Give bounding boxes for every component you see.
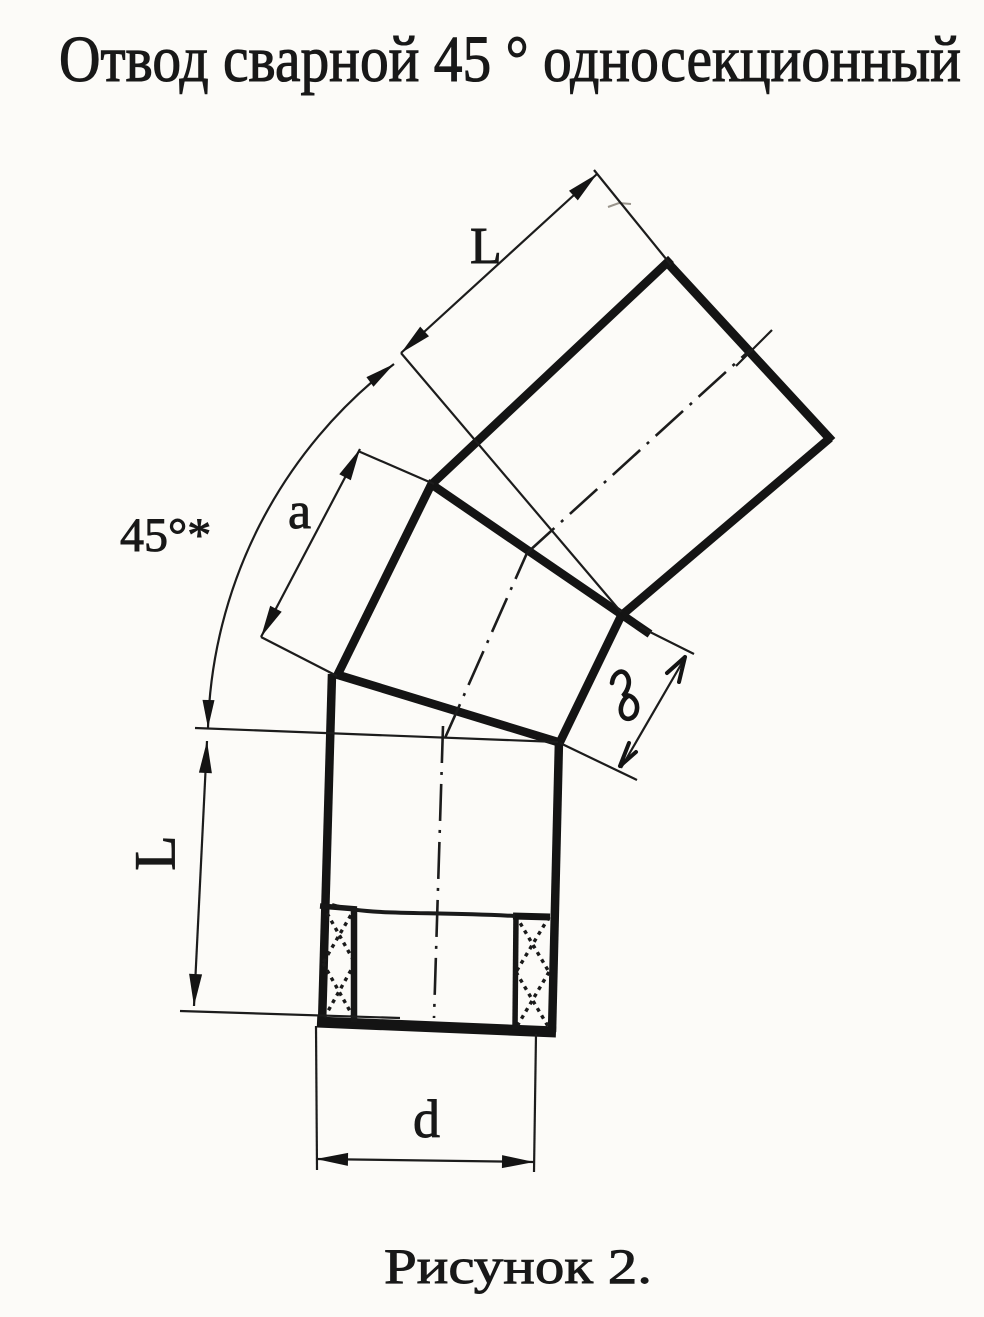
svg-text:L: L [470, 218, 502, 275]
svg-text:Отвод сварной 45 ° односекцион: Отвод сварной 45 ° односекционный [59, 23, 961, 96]
svg-text:Рисунок 2.: Рисунок 2. [384, 1238, 652, 1294]
svg-text:a: a [288, 483, 311, 540]
svg-text:45°*: 45°* [120, 509, 211, 562]
svg-text:d: d [413, 1089, 440, 1149]
svg-text:L: L [122, 835, 187, 870]
